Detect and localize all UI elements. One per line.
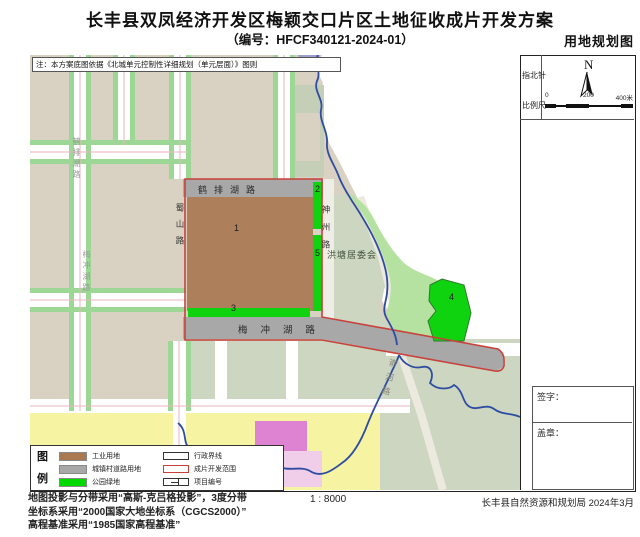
road-label-meichonghu: 梅冲湖路 — [238, 322, 328, 336]
signature-label: 签字： — [537, 390, 564, 403]
basemap-road-label-1: 鹤排湖路 — [71, 137, 82, 181]
scale-tick-400: 400米 — [616, 92, 633, 102]
legend-item-development-boundary: 成片开发范围 — [163, 464, 236, 474]
projection-line-1: 地图投影与分带采用“高斯-克吕格投影”，3度分带 — [28, 492, 247, 506]
map-canvas — [30, 55, 520, 490]
road-label-shushan: 蜀山路 — [174, 203, 186, 253]
legend-item-road: 城镇村道路用地 — [59, 464, 141, 474]
scale-bar-ticks: 0 200 400米 — [545, 92, 633, 100]
scale-bar — [545, 103, 633, 108]
seal-label: 盖章： — [537, 426, 564, 439]
legend-item-admin-boundary: 行政界线 — [163, 451, 222, 461]
parcel-number-4: 4 — [449, 292, 454, 302]
legend-item-label: 工业用地 — [92, 451, 120, 461]
map-scale-text: 1 : 8000 — [310, 494, 346, 505]
parcel-number-1: 1 — [234, 223, 239, 233]
map-type-label: 用地规划图 — [564, 31, 634, 50]
parcel-number-3: 3 — [231, 303, 236, 313]
compass-label: 指北针 — [522, 70, 546, 81]
legend-item-label: 公园绿地 — [92, 477, 120, 487]
park-swatch — [59, 478, 87, 487]
scale-tick-200: 200 — [583, 92, 594, 99]
road-label-hepaihu: 鹤排湖路 — [198, 183, 262, 196]
legend-item-industrial: 工业用地 — [59, 451, 120, 461]
scale-tick-0: 0 — [545, 92, 549, 99]
admin-boundary-symbol — [163, 452, 189, 460]
project-number-symbol — [163, 478, 189, 486]
legend-title-char-1: 图 — [37, 448, 48, 464]
panel-horizontal-divider — [520, 119, 634, 120]
projection-line-3: 高程基准采用“1985国家高程基准” — [28, 519, 247, 533]
page-title: 长丰县双凤经济开发区梅颖交口片区土地征收成片开发方案 — [0, 6, 640, 31]
legend-item-label: 行政界线 — [194, 451, 222, 461]
base-map — [30, 55, 520, 490]
base-map-note: 注：本方案底图依据《北城单元控制性详细规划（单元层面）》图则 — [32, 57, 341, 72]
parcel-number-5: 5 — [315, 248, 320, 258]
legend-title-char-2: 例 — [37, 470, 48, 486]
legend-item-label: 成片开发范围 — [194, 464, 236, 474]
legend-item-project-number: 项目编号 — [163, 477, 222, 487]
legend-item-label: 城镇村道路用地 — [92, 464, 141, 474]
road-swatch — [59, 465, 87, 474]
signature-seal-divider — [532, 422, 632, 423]
development-boundary-symbol — [163, 465, 189, 473]
industrial-swatch — [59, 452, 87, 461]
panel-divider — [520, 55, 521, 490]
legend-item-park: 公园绿地 — [59, 477, 120, 487]
legend-item-label: 项目编号 — [194, 477, 222, 487]
legend-title: 图 例 — [37, 448, 48, 486]
parcel-number-2: 2 — [315, 184, 320, 194]
projection-line-2: 坐标系采用“2000国家大地坐标系（CGCS2000）” — [28, 506, 247, 520]
scale-label: 比例尺 — [522, 100, 546, 111]
agency-and-date: 长丰县自然资源和规划局 2024年3月 — [481, 495, 634, 509]
basemap-road-label-2: 梅冲湖路 — [81, 250, 92, 294]
area-label-hongtang: 洪塘居委会 — [327, 248, 377, 261]
legend: 图 例 工业用地 城镇村道路用地 公园绿地 行政界线 成片开发范围 项目编号 — [30, 445, 284, 491]
projection-notes: 地图投影与分带采用“高斯-克吕格投影”，3度分带 坐标系采用“2000国家大地坐… — [28, 492, 247, 533]
plan-number: （编号：HFCF340121-2024-01） — [0, 29, 640, 48]
land-use-plan-document: 长丰县双凤经济开发区梅颖交口片区土地征收成片开发方案 （编号：HFCF34012… — [0, 0, 640, 537]
